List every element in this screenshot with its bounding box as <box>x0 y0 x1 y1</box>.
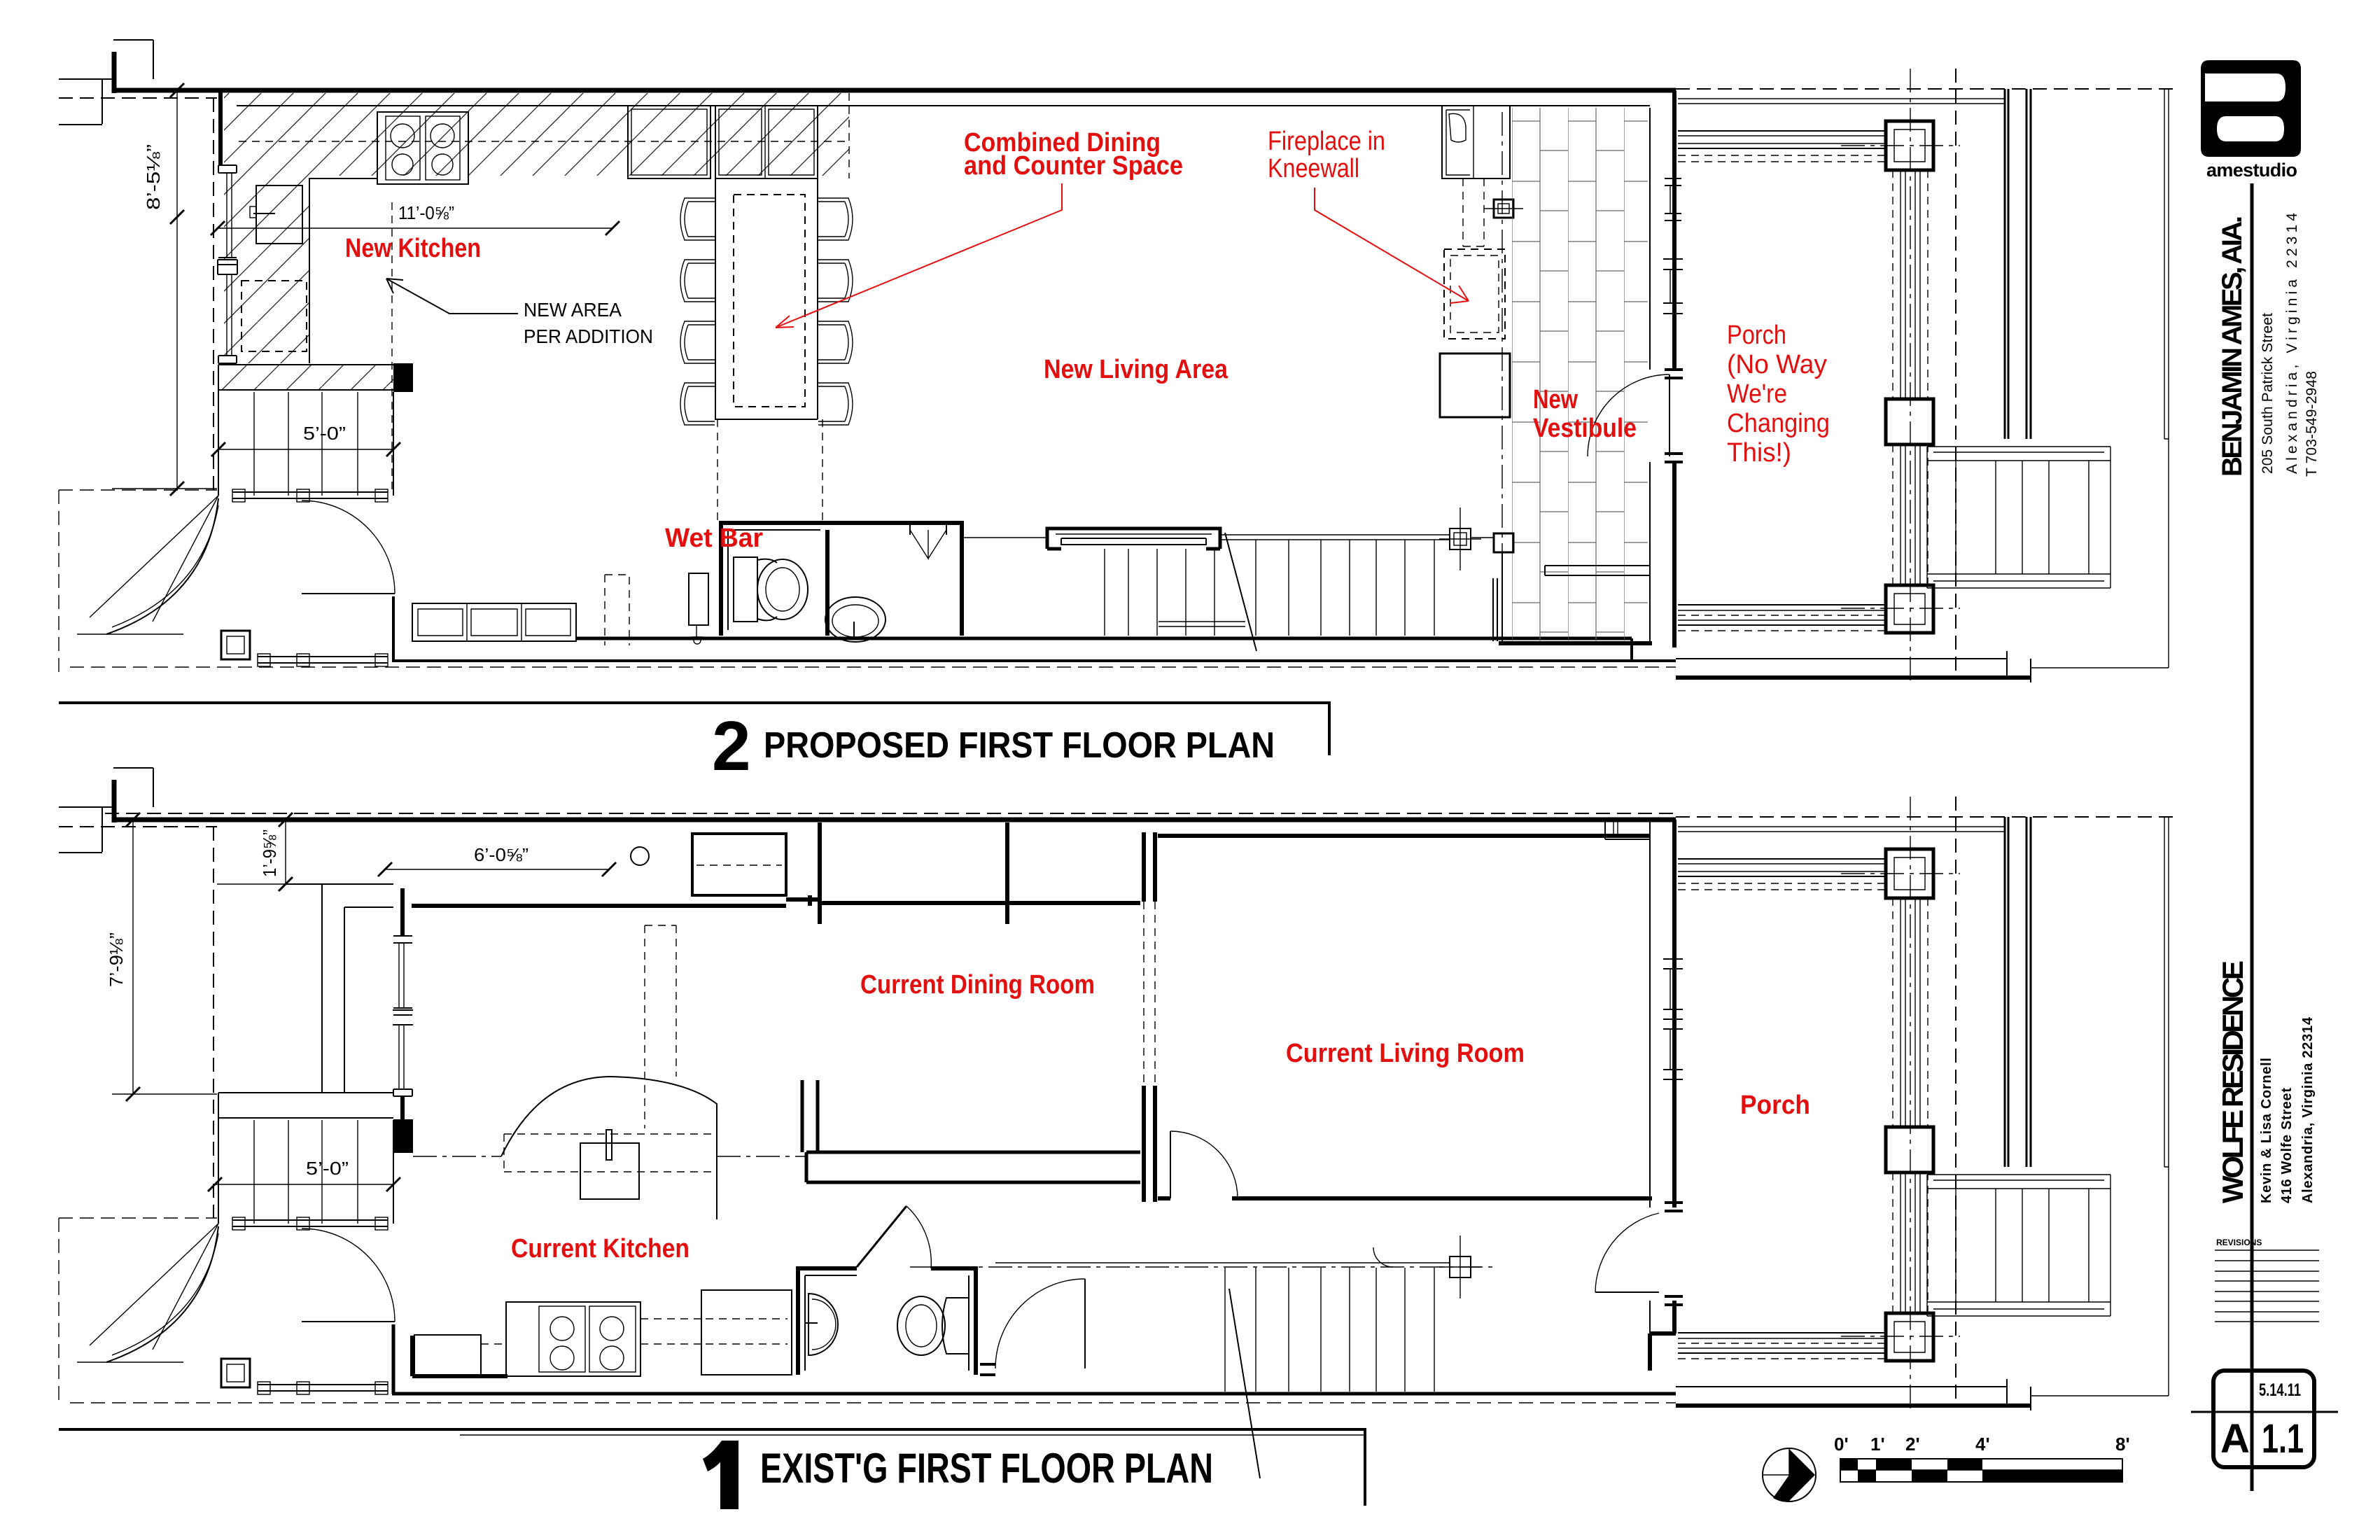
svg-text:We're: We're <box>1727 379 1787 409</box>
svg-text:8’-5⅛”: 8’-5⅛” <box>143 144 164 210</box>
svg-text:8': 8' <box>2115 1434 2130 1455</box>
svg-text:2: 2 <box>712 707 751 785</box>
svg-text:amestudio: amestudio <box>2206 160 2297 181</box>
svg-text:WOLFE RESIDENCE: WOLFE RESIDENCE <box>2216 960 2249 1203</box>
svg-text:Porch: Porch <box>1727 321 1786 350</box>
svg-text:Changing: Changing <box>1727 409 1830 438</box>
svg-text:Fireplace in: Fireplace in <box>1268 127 1385 156</box>
svg-text:2': 2' <box>1905 1434 1920 1455</box>
svg-text:New Living Area: New Living Area <box>1044 355 1228 384</box>
svg-text:Wet Bar: Wet Bar <box>665 524 763 553</box>
svg-text:4': 4' <box>1975 1434 1990 1455</box>
svg-text:Current Kitchen: Current Kitchen <box>511 1234 689 1263</box>
svg-text:T 703-549-2948: T 703-549-2948 <box>2304 371 2320 477</box>
svg-text:New Kitchen: New Kitchen <box>345 234 481 263</box>
svg-text:PROPOSED FIRST FLOOR PLAN: PROPOSED FIRST FLOOR PLAN <box>764 725 1275 766</box>
svg-text:1': 1' <box>1870 1434 1885 1455</box>
svg-text:7’-9⅛”: 7’-9⅛” <box>106 932 127 987</box>
svg-text:0': 0' <box>1834 1434 1849 1455</box>
svg-text:Alexandria, Virginia 22314: Alexandria, Virginia 22314 <box>2300 1016 2316 1203</box>
svg-text:Current Living Room: Current Living Room <box>1286 1039 1525 1068</box>
svg-text:A: A <box>2220 1416 2250 1462</box>
svg-text:This!): This!) <box>1727 438 1791 468</box>
svg-text:REVISIONS: REVISIONS <box>2216 1238 2262 1247</box>
svg-text:Vestibule: Vestibule <box>1533 414 1637 443</box>
svg-text:BENJAMIN AMES, AIA.: BENJAMIN AMES, AIA. <box>2217 216 2248 477</box>
svg-text:PER ADDITION: PER ADDITION <box>524 325 653 347</box>
svg-text:and Counter Space: and Counter Space <box>964 151 1183 181</box>
svg-text:1’-9⅝”: 1’-9⅝” <box>259 829 280 877</box>
svg-text:(No Way: (No Way <box>1727 350 1827 379</box>
svg-text:11’-0⅝”: 11’-0⅝” <box>398 202 454 223</box>
svg-text:5’-0”: 5’-0” <box>303 423 346 444</box>
svg-text:6’-0⅝”: 6’-0⅝” <box>474 844 528 865</box>
svg-text:5.14.11: 5.14.11 <box>2259 1380 2301 1400</box>
svg-text:Porch: Porch <box>1740 1091 1810 1120</box>
svg-text:205 South Patrick Street: 205 South Patrick Street <box>2260 313 2276 474</box>
svg-text:EXIST'G FIRST FLOOR PLAN: EXIST'G FIRST FLOOR PLAN <box>760 1445 1213 1492</box>
svg-text:5’-0”: 5’-0” <box>306 1158 349 1179</box>
svg-text:Current Dining Room: Current Dining Room <box>860 970 1095 1000</box>
svg-text:NEW AREA: NEW AREA <box>524 299 622 321</box>
svg-text:Kevin & Lisa Cornell: Kevin & Lisa Cornell <box>2259 1058 2274 1203</box>
svg-text:416 Wolfe Street: 416 Wolfe Street <box>2279 1088 2295 1203</box>
svg-text:New: New <box>1533 385 1578 414</box>
svg-text:Alexandria, Virginia 22314: Alexandria, Virginia 22314 <box>2284 210 2300 474</box>
svg-text:Kneewall: Kneewall <box>1268 154 1359 183</box>
svg-text:1.1: 1.1 <box>2262 1416 2304 1462</box>
